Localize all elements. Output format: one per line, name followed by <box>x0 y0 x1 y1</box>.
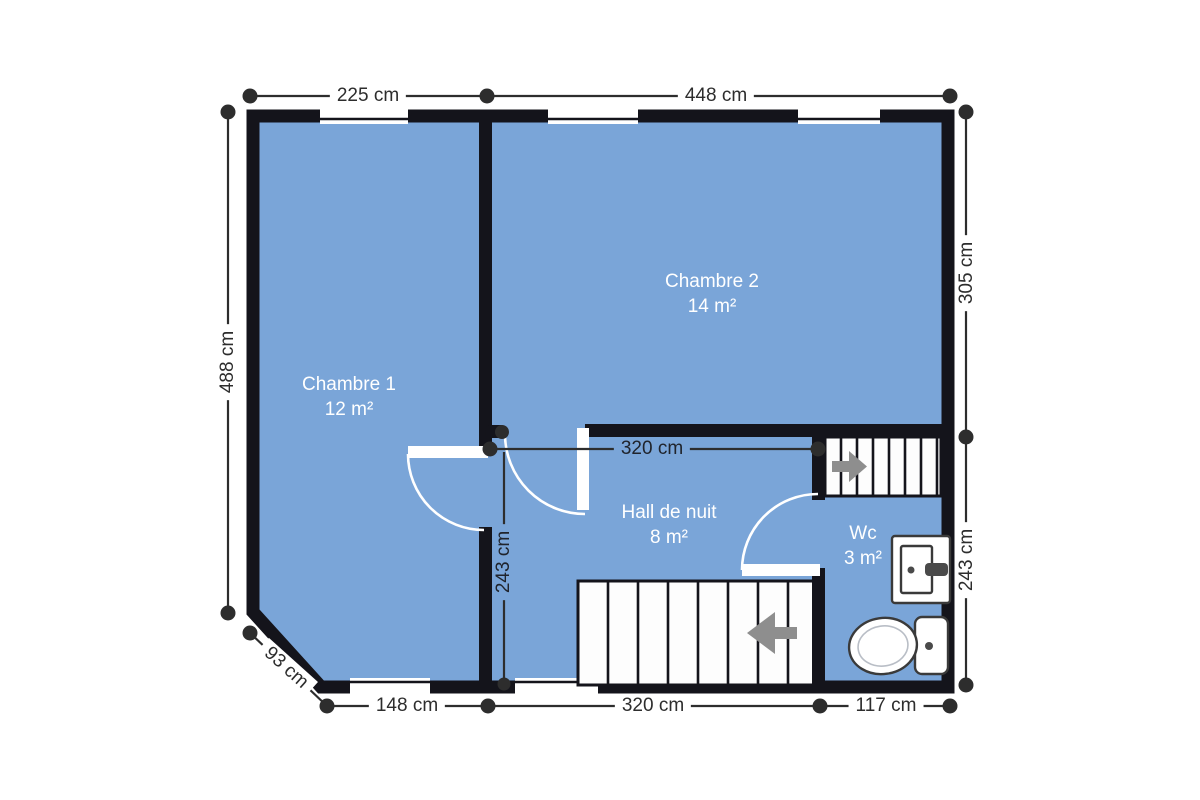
dimension-label-top-right: 448 cm <box>678 85 754 107</box>
room-name: Chambre 2 <box>665 269 759 294</box>
dimension-label-interior-horizontal: 320 cm <box>614 438 690 460</box>
floor-plan-drawing <box>0 0 1200 800</box>
sink-icon <box>892 536 950 603</box>
room-label-hall: Hall de nuit 8 m² <box>621 500 716 550</box>
dimension-label-right-top: 305 cm <box>956 235 978 311</box>
room-name: Chambre 1 <box>302 372 396 397</box>
stairs-lower <box>578 581 814 685</box>
dimension-label-interior-vertical: 243 cm <box>493 524 515 600</box>
room-area: 3 m² <box>844 546 882 571</box>
room-label-chambre1: Chambre 1 12 m² <box>302 372 396 422</box>
dimension-label-bottom-middle: 320 cm <box>615 695 691 717</box>
room-label-chambre2: Chambre 2 14 m² <box>665 269 759 319</box>
room-label-wc: Wc 3 m² <box>844 521 882 571</box>
floor-plan: 225 cm 448 cm 488 cm 305 cm 243 cm 148 c… <box>0 0 1200 800</box>
dimension-label-bottom-left: 148 cm <box>369 695 445 717</box>
window <box>350 678 430 694</box>
dimension-label-right-bottom: 243 cm <box>956 522 978 598</box>
window <box>798 108 880 124</box>
room-area: 14 m² <box>665 294 759 319</box>
dimension-label-left: 488 cm <box>217 324 239 400</box>
stairs-upper <box>825 437 941 496</box>
dimension-label-top-left: 225 cm <box>330 85 406 107</box>
window <box>548 108 638 124</box>
room-name: Hall de nuit <box>621 500 716 525</box>
room-name: Wc <box>844 521 882 546</box>
room-area: 12 m² <box>302 397 396 422</box>
room-area: 8 m² <box>621 525 716 550</box>
window <box>320 108 408 124</box>
dimension-label-bottom-right: 117 cm <box>849 695 924 717</box>
